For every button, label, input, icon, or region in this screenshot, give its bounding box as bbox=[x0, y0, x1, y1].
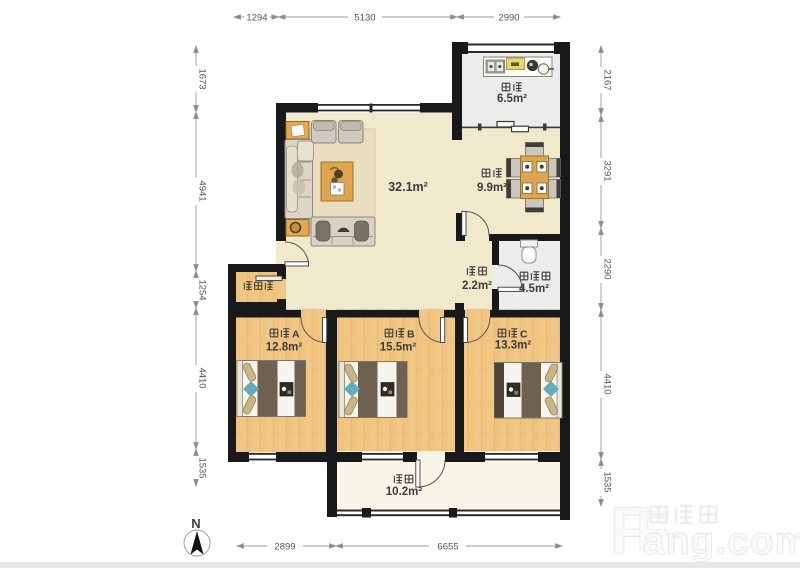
svg-text:4410: 4410 bbox=[197, 367, 208, 388]
svg-text:1673: 1673 bbox=[197, 68, 208, 89]
svg-text:2899: 2899 bbox=[274, 542, 295, 553]
svg-text:1535: 1535 bbox=[197, 457, 208, 478]
svg-text:32.1m²: 32.1m² bbox=[388, 180, 428, 194]
svg-text:12.8m²: 12.8m² bbox=[266, 342, 303, 354]
svg-text:4410: 4410 bbox=[602, 373, 613, 394]
svg-text:4941: 4941 bbox=[197, 180, 208, 201]
svg-text:6655: 6655 bbox=[437, 542, 458, 553]
svg-text:2167: 2167 bbox=[602, 69, 613, 90]
svg-text:13.3m²: 13.3m² bbox=[495, 340, 532, 352]
svg-text:2290: 2290 bbox=[602, 258, 613, 279]
svg-text:9.9m²: 9.9m² bbox=[477, 182, 507, 194]
svg-text:2990: 2990 bbox=[498, 13, 519, 24]
svg-text:N: N bbox=[191, 516, 200, 531]
svg-text:4.5m²: 4.5m² bbox=[519, 283, 549, 295]
svg-text:A: A bbox=[292, 329, 300, 341]
svg-text:3291: 3291 bbox=[602, 160, 613, 181]
svg-text:15.5m²: 15.5m² bbox=[380, 342, 417, 354]
svg-text:B: B bbox=[407, 329, 415, 341]
svg-text:10.2m²: 10.2m² bbox=[386, 486, 423, 498]
svg-text:2.2m²: 2.2m² bbox=[462, 280, 492, 292]
svg-text:ang.com: ang.com bbox=[643, 520, 800, 563]
svg-text:1294: 1294 bbox=[246, 13, 267, 24]
svg-text:6.5m²: 6.5m² bbox=[497, 93, 527, 105]
svg-text:1254: 1254 bbox=[197, 279, 208, 300]
svg-text:5130: 5130 bbox=[354, 13, 375, 24]
svg-text:1535: 1535 bbox=[602, 471, 613, 492]
